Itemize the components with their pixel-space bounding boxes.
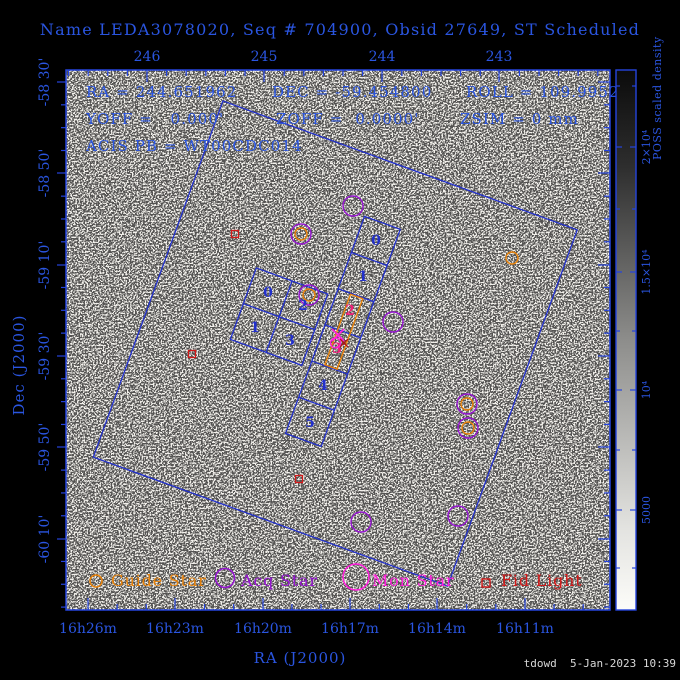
sky-plot: Name LEDA3078020, Seq # 704900, Obsid 27… bbox=[0, 0, 680, 680]
dec-value: DEC = -59.454800 bbox=[272, 83, 432, 101]
chip-label: 1 bbox=[250, 320, 260, 336]
dec-tick-label: -59 30' bbox=[37, 332, 53, 381]
acis-pb-value: ACIS PB = WT00CDC014 bbox=[85, 137, 303, 155]
yoff-value: YOFF = 0.000' bbox=[85, 110, 224, 128]
dec-tick-label: -59 10' bbox=[37, 241, 53, 290]
dec-tick-label: -59 50' bbox=[37, 423, 53, 472]
colorbar-tick-label: 1.5×10⁴ bbox=[640, 249, 653, 295]
colorbar: 2×10⁴1.5×10⁴10⁴5000 POSS scaled density bbox=[616, 36, 664, 610]
ra-deg-tick-label: 243 bbox=[486, 49, 513, 65]
chip-label: 2 bbox=[345, 303, 355, 319]
dec-tick-label: -58 30' bbox=[37, 58, 53, 107]
chip-label: 4 bbox=[318, 378, 328, 394]
chip-label: 3 bbox=[285, 333, 295, 349]
ra-hm-tick-label: 16h14m bbox=[408, 621, 466, 637]
colorbar-tick-label: 5000 bbox=[640, 496, 653, 524]
ra-hm-tick-label: 16h17m bbox=[321, 621, 379, 637]
guide-star-legend-label: Guide Star bbox=[111, 571, 207, 590]
chip-label: 1 bbox=[358, 269, 368, 285]
ra-hm-tick-label: 16h26m bbox=[59, 621, 117, 637]
colorbar-title: POSS scaled density bbox=[651, 36, 664, 160]
ra-hm-tick-label: 16h11m bbox=[496, 621, 554, 637]
zsim-value: ZSIM = 0 mm bbox=[460, 110, 579, 128]
colorbar-tick-label: 10⁴ bbox=[640, 380, 653, 399]
chip-label: 5 bbox=[305, 415, 315, 431]
dec-tick-label: -60 10' bbox=[37, 515, 53, 564]
ra-deg-tick-label: 244 bbox=[369, 49, 396, 65]
window-title: Name LEDA3078020, Seq # 704900, Obsid 27… bbox=[40, 20, 640, 39]
dec-tick-label: -58 50' bbox=[37, 149, 53, 198]
obsvis-window: Name LEDA3078020, Seq # 704900, Obsid 27… bbox=[0, 0, 680, 680]
fid-light-legend-label: Fid Light bbox=[501, 571, 582, 590]
ra-hm-tick-label: 16h20m bbox=[234, 621, 292, 637]
x-axis-title: RA (J2000) bbox=[254, 649, 347, 667]
ra-deg-tick-label: 246 bbox=[134, 49, 161, 65]
ra-deg-tick-label: 245 bbox=[251, 49, 278, 65]
zoff-value: ZOFF = 0.0000' bbox=[276, 110, 420, 128]
chip-label: 0 bbox=[371, 233, 381, 249]
colorbar-gradient bbox=[616, 70, 636, 610]
acq-star-legend-label: Acq Star bbox=[240, 571, 318, 590]
user-timestamp: tdowd 5-Jan-2023 10:39 bbox=[524, 657, 676, 670]
y-axis-title: Dec (J2000) bbox=[10, 315, 28, 416]
mon-star-legend-label: Mon Star bbox=[372, 571, 454, 590]
ra-value: RA = 244.651962 bbox=[86, 83, 237, 101]
ra-hm-tick-label: 16h23m bbox=[146, 621, 204, 637]
chip-label: 2 bbox=[298, 298, 308, 314]
roll-value: ROLL = 109.9952 bbox=[466, 83, 620, 101]
chip-label: 0 bbox=[263, 285, 273, 301]
